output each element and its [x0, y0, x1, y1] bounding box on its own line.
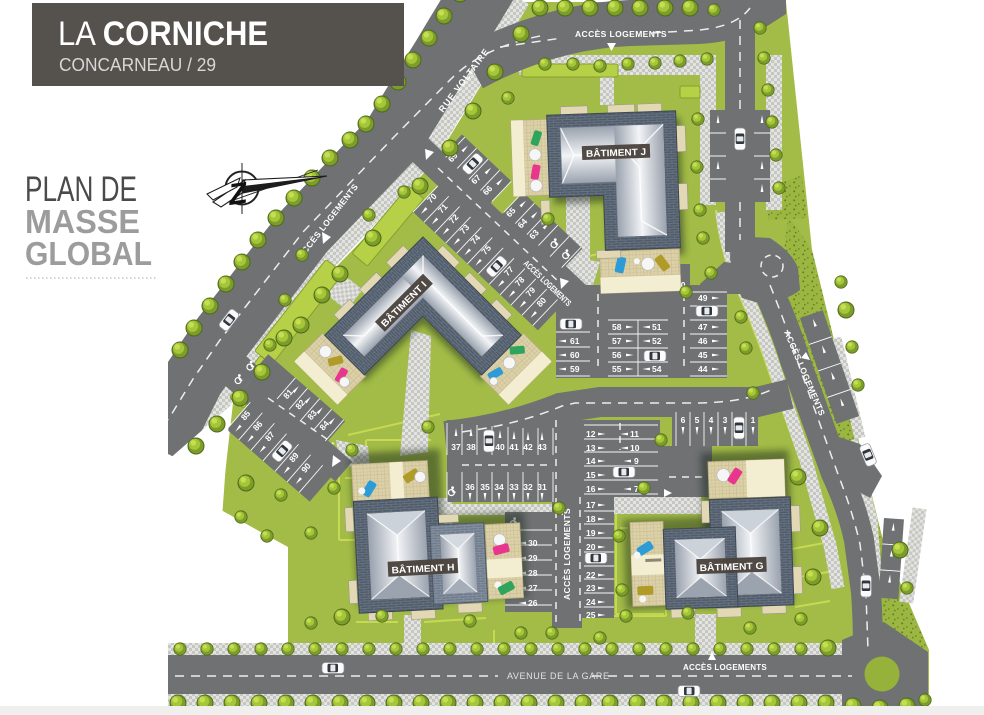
svg-text:LA CORNICHE: LA CORNICHE [58, 15, 268, 53]
svg-text:14: 14 [586, 456, 596, 466]
svg-text:60: 60 [570, 350, 580, 360]
svg-text:45: 45 [698, 350, 708, 360]
svg-text:10: 10 [630, 443, 640, 453]
svg-text:16: 16 [586, 484, 596, 494]
svg-text:12: 12 [586, 429, 596, 439]
svg-text:5: 5 [695, 415, 700, 425]
svg-text:41: 41 [509, 442, 519, 452]
svg-text:18: 18 [586, 514, 596, 524]
svg-text:27: 27 [528, 583, 538, 593]
svg-text:CONCARNEAU / 29: CONCARNEAU / 29 [59, 54, 216, 75]
svg-text:37: 37 [451, 442, 461, 452]
svg-text:ACCÈS LOGEMENTS: ACCÈS LOGEMENTS [575, 29, 667, 39]
svg-text:59: 59 [570, 364, 580, 374]
svg-text:30: 30 [528, 538, 538, 548]
svg-text:ACCÈS LOGEMENTS: ACCÈS LOGEMENTS [683, 663, 767, 672]
svg-text:54: 54 [652, 364, 662, 374]
svg-text:35: 35 [480, 482, 490, 492]
svg-text:33: 33 [509, 482, 519, 492]
svg-text:22: 22 [586, 570, 596, 580]
svg-text:15: 15 [586, 470, 596, 480]
svg-text:11: 11 [630, 429, 639, 439]
svg-text:51: 51 [652, 322, 662, 332]
svg-text:36: 36 [465, 482, 475, 492]
svg-text:38: 38 [466, 442, 476, 452]
svg-text:ACCÈS LOGEMENTS: ACCÈS LOGEMENTS [562, 508, 572, 600]
svg-text:GLOBAL: GLOBAL [25, 235, 152, 272]
svg-text:24: 24 [586, 597, 596, 607]
svg-text:17: 17 [586, 500, 596, 510]
svg-text:31: 31 [537, 482, 547, 492]
svg-text:19: 19 [586, 528, 596, 538]
svg-text:49: 49 [698, 293, 708, 303]
svg-text:6: 6 [681, 415, 686, 425]
svg-text:23: 23 [586, 583, 596, 593]
svg-text:57: 57 [612, 336, 622, 346]
svg-text:20: 20 [586, 542, 596, 552]
svg-text:55: 55 [612, 364, 622, 374]
svg-text:25: 25 [586, 610, 596, 620]
svg-text:43: 43 [537, 442, 547, 452]
svg-text:44: 44 [698, 364, 708, 374]
svg-text:BÂTIMENT G: BÂTIMENT G [699, 560, 763, 574]
svg-text:28: 28 [528, 568, 538, 578]
svg-text:58: 58 [612, 322, 622, 332]
svg-text:AVENUE DE LA GARE: AVENUE DE LA GARE [507, 671, 610, 681]
svg-text:46: 46 [698, 336, 708, 346]
svg-text:3: 3 [723, 415, 728, 425]
svg-text:61: 61 [570, 336, 580, 346]
svg-text:29: 29 [528, 553, 538, 563]
svg-text:13: 13 [586, 443, 596, 453]
svg-text:32: 32 [523, 482, 533, 492]
svg-text:4: 4 [709, 415, 714, 425]
svg-text:1: 1 [751, 415, 756, 425]
svg-text:34: 34 [494, 482, 504, 492]
svg-text:9: 9 [634, 456, 639, 466]
svg-text:BÂTIMENT J: BÂTIMENT J [586, 146, 646, 160]
svg-text:42: 42 [523, 442, 533, 452]
svg-text:56: 56 [612, 350, 622, 360]
svg-text:52: 52 [652, 336, 662, 346]
svg-text:40: 40 [495, 442, 505, 452]
svg-text:47: 47 [698, 322, 708, 332]
svg-text:26: 26 [528, 598, 538, 608]
